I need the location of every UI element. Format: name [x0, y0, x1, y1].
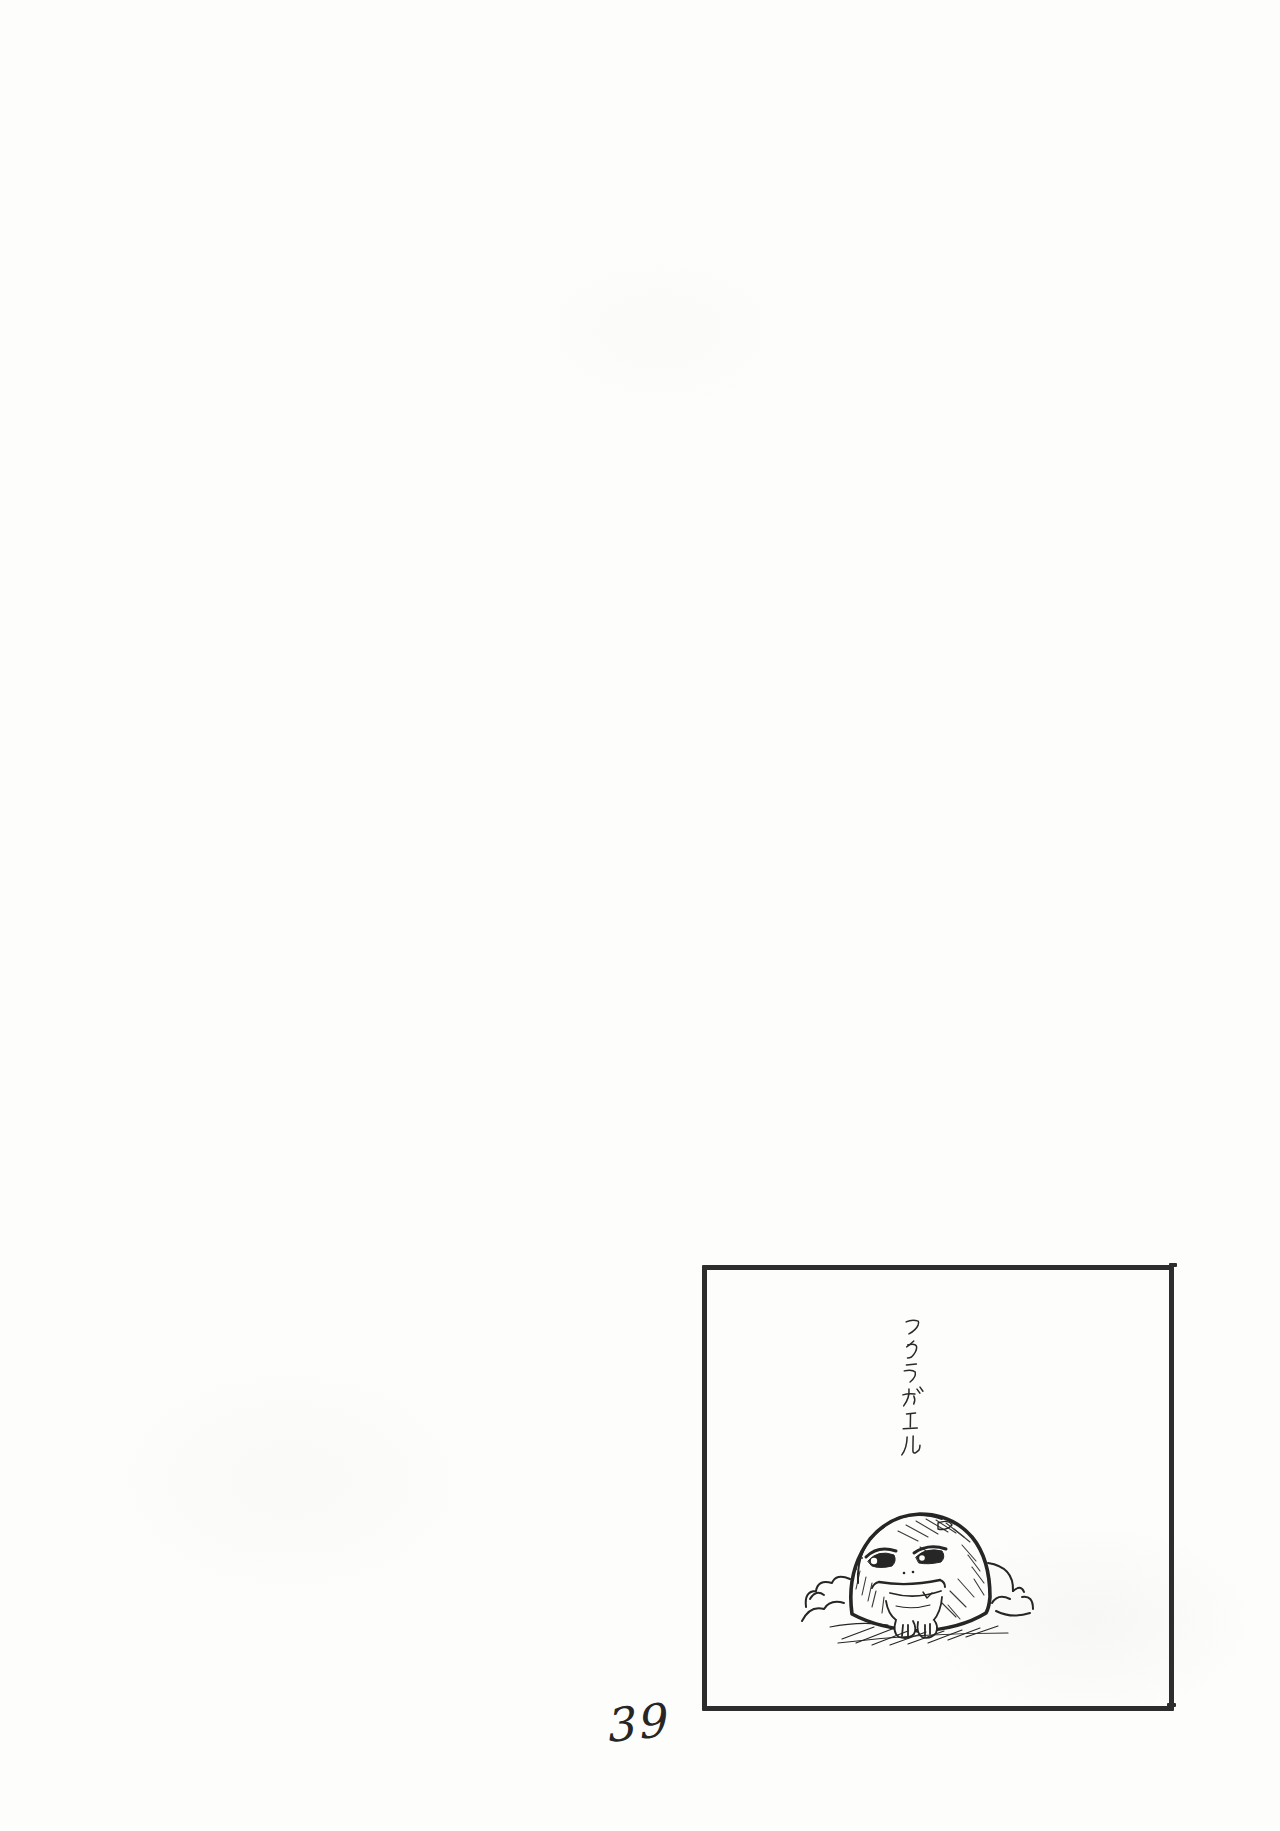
page-number: 39	[602, 1697, 669, 1749]
panel-corner-overshoot-top-right	[1169, 1263, 1177, 1267]
kana-e	[903, 1413, 917, 1429]
frog-body	[851, 1514, 990, 1631]
sand-mounds-right	[988, 1563, 1033, 1616]
sand-mounds-left	[802, 1577, 850, 1621]
panel-corner-overshoot-bottom-right	[1167, 1703, 1176, 1707]
panel-caption-text: フクラガエル	[0, 0, 1, 1]
caption-vertical-handwriting	[899, 1317, 925, 1457]
kana-ku	[907, 1341, 917, 1358]
frog-drawing	[800, 1487, 1040, 1647]
kana-ra	[904, 1364, 916, 1382]
scanned-manga-page: フクラガエル	[0, 0, 1280, 1831]
frog-drawing-description: round rain frog half-buried in sand moun…	[0, 0, 1, 1]
kana-ru	[902, 1436, 920, 1455]
kana-fu	[906, 1320, 919, 1334]
kana-ga	[903, 1387, 923, 1406]
